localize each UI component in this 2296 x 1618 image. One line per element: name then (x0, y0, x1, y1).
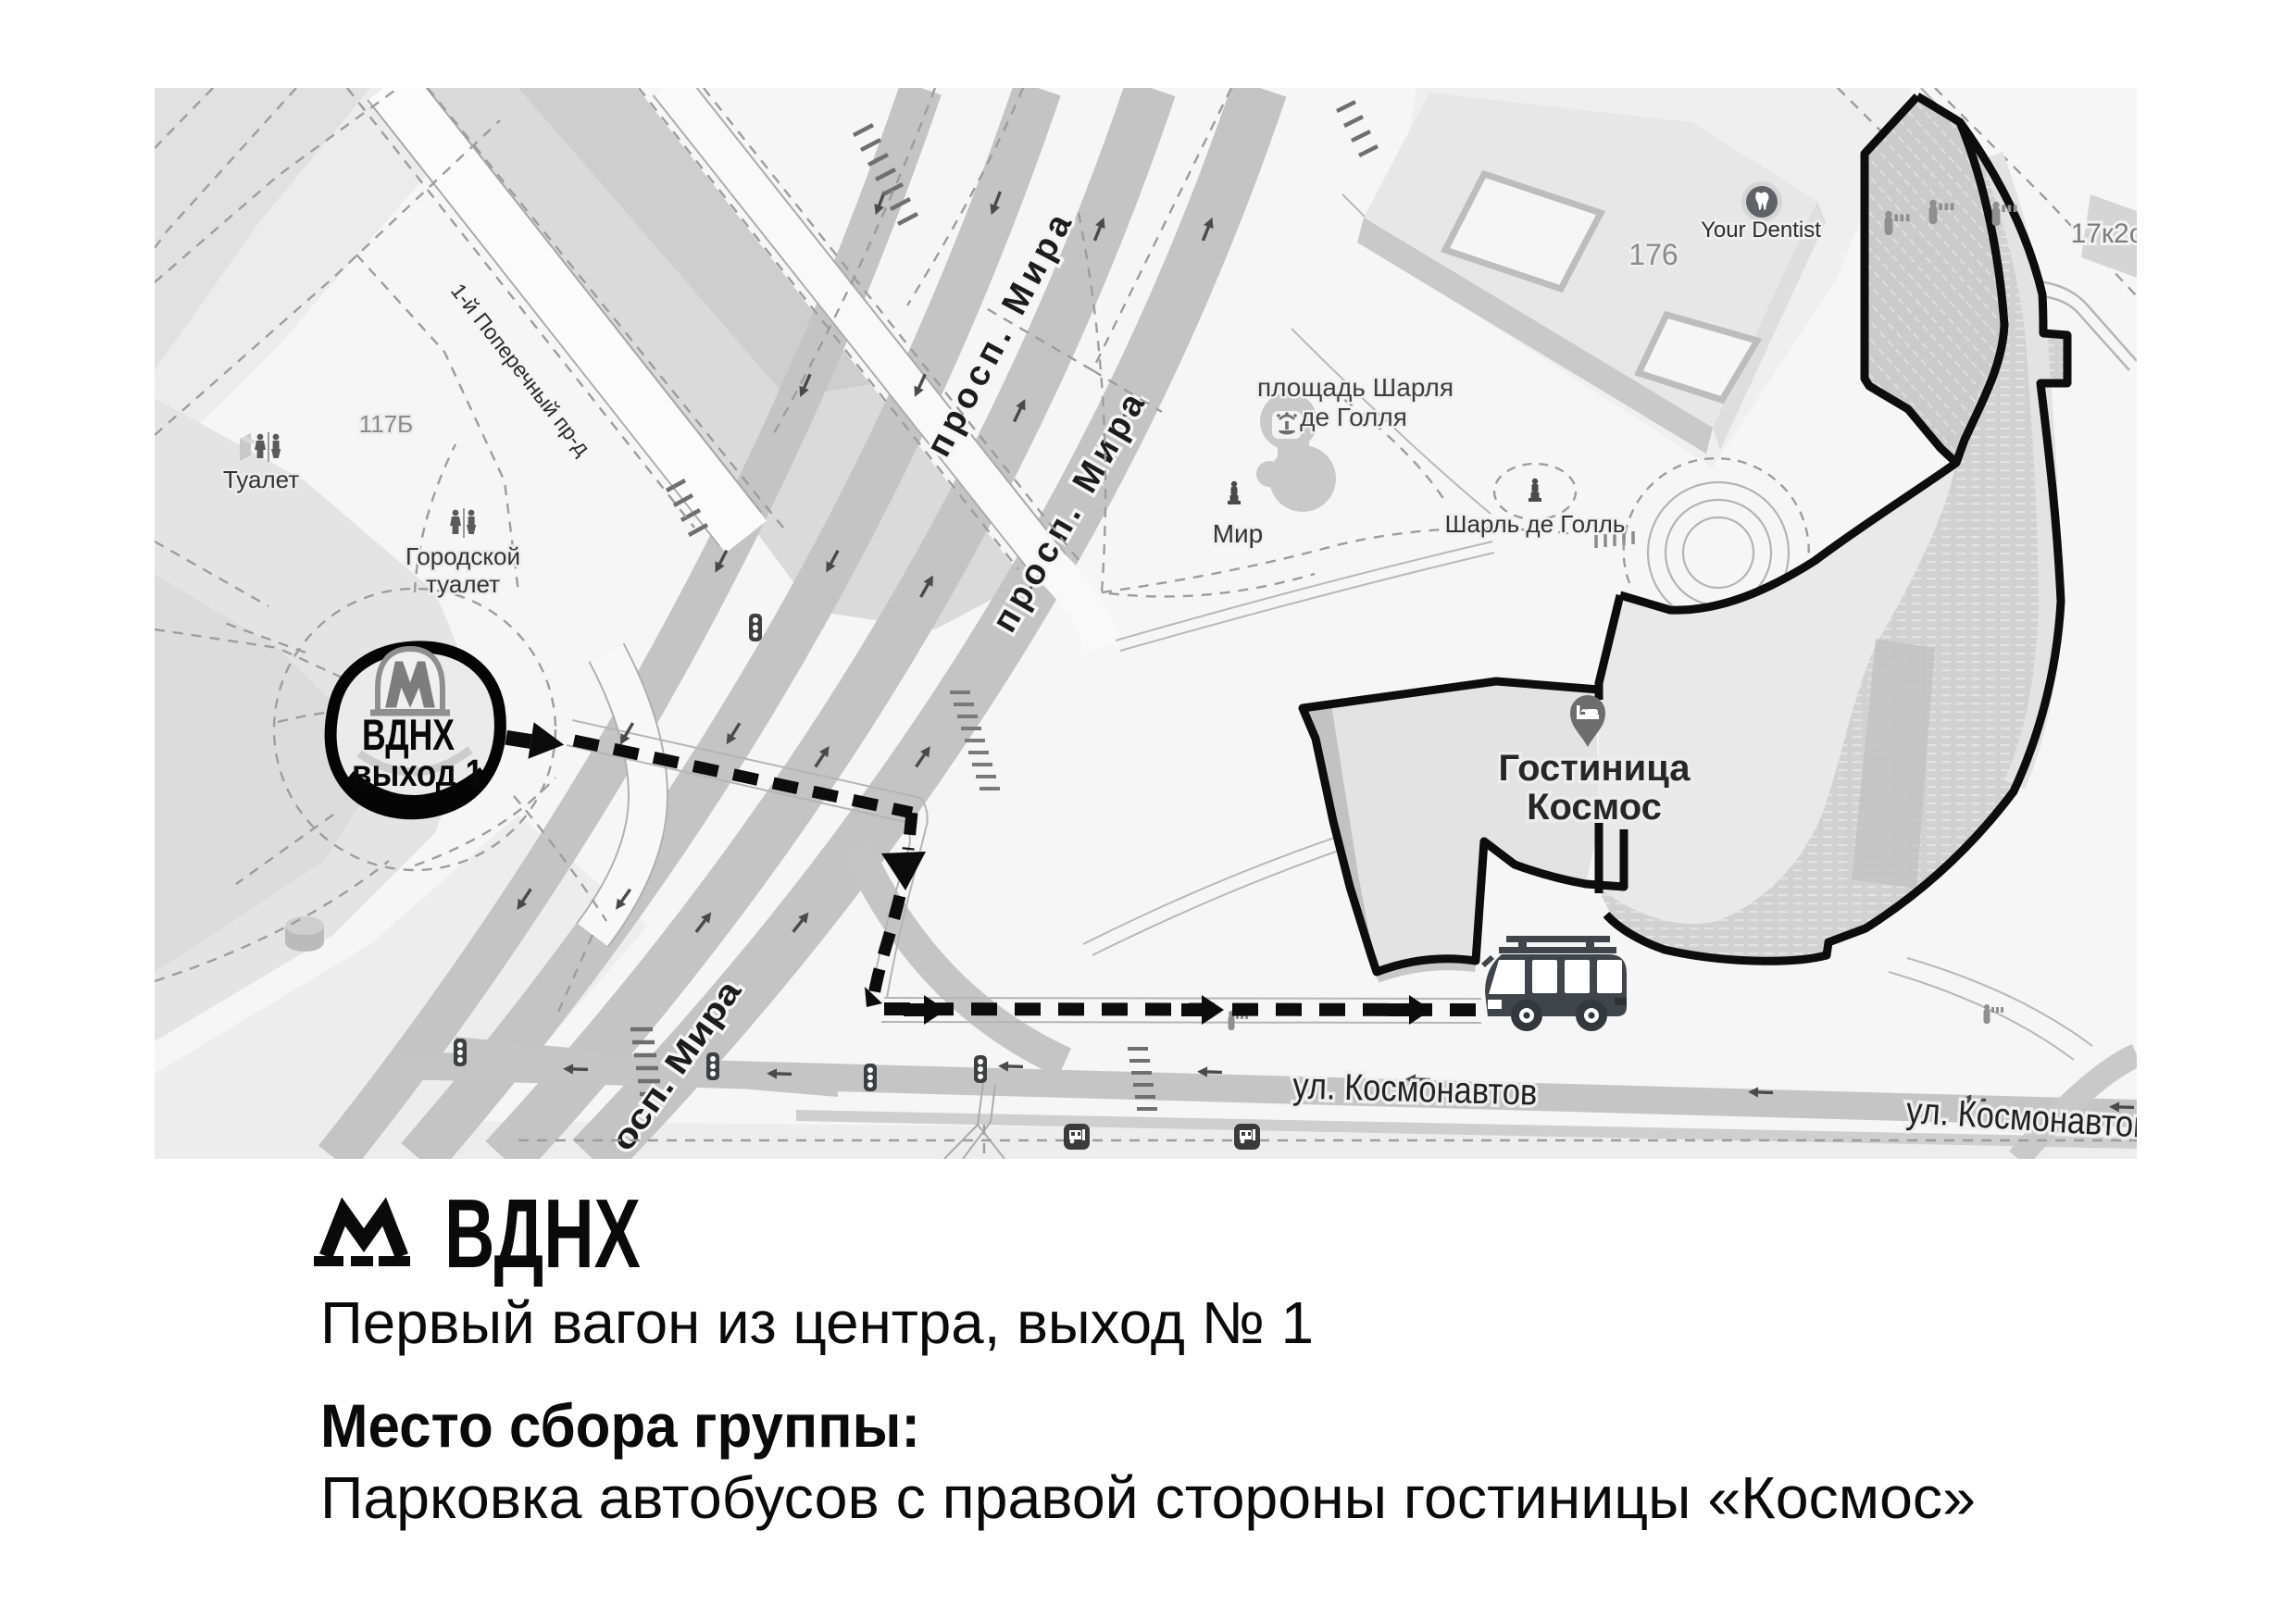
svg-text:117Б: 117Б (359, 410, 414, 438)
svg-text:Your Dentist: Your Dentist (1701, 218, 1821, 243)
svg-text:Мир: Мир (1213, 519, 1264, 548)
svg-text:176: 176 (1628, 238, 1678, 271)
svg-text:туалет: туалет (426, 570, 500, 598)
svg-text:Шарль де Голль: Шарль де Голль (1445, 510, 1626, 538)
svg-text:Гостиница: Гостиница (1498, 748, 1691, 789)
svg-text:ВДНХ: ВДНХ (444, 1179, 641, 1288)
svg-text:площадь Шарля: площадь Шарля (1257, 373, 1454, 402)
svg-text:Парковка автобусов с правой ст: Парковка автобусов с правой стороны гост… (320, 1464, 1976, 1531)
svg-text:ул. Космонавтов: ул. Космонавтов (1292, 1065, 1538, 1113)
svg-text:де Голля: де Голля (1300, 403, 1407, 431)
svg-text:Туалет: Туалет (223, 466, 299, 493)
svg-text:Городской: Городской (406, 542, 520, 570)
svg-text:Место сбора группы:: Место сбора группы: (320, 1391, 920, 1460)
svg-text:17к2с1: 17к2с1 (2071, 218, 2159, 249)
svg-text:Космос: Космос (1527, 787, 1662, 828)
svg-text:выход 1: выход 1 (352, 752, 483, 794)
svg-text:Первый вагон из центра, выход: Первый вагон из центра, выход № 1 (320, 1289, 1314, 1356)
